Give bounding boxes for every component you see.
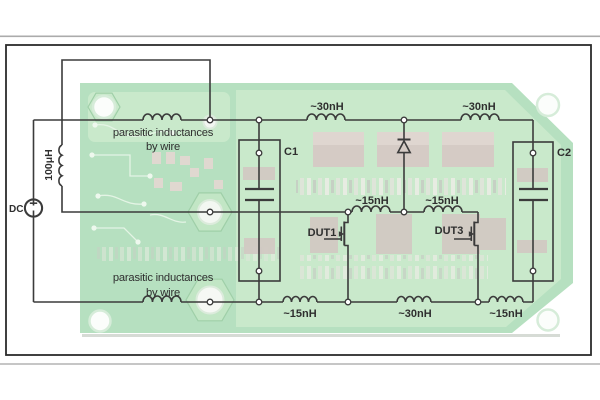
dc-source-label: DC xyxy=(9,204,23,215)
node xyxy=(401,209,407,215)
parasitic-note-top-line2: by wire xyxy=(146,141,180,153)
node xyxy=(256,150,262,156)
mid-inductor-1-label: ~15nH xyxy=(355,195,388,207)
top-inductor-1-label: ~30nH xyxy=(310,101,343,113)
pcb-pad-row xyxy=(300,255,488,279)
node xyxy=(475,299,481,305)
parasitic-note-top-line1: parasitic inductances xyxy=(113,127,214,139)
top-inductor-2-label: ~30nH xyxy=(462,101,495,113)
parasitic-note-bottom-line1: parasitic inductances xyxy=(113,272,214,284)
cap1-label: C1 xyxy=(284,146,298,158)
figure-page: DC 100μH parasitic inductances by wire p… xyxy=(0,0,600,400)
top-divider xyxy=(0,36,600,38)
node xyxy=(530,150,536,156)
node xyxy=(207,117,213,123)
pcb-pad-row xyxy=(296,173,506,196)
bottom-divider xyxy=(0,363,600,365)
node xyxy=(345,209,351,215)
node xyxy=(345,299,351,305)
cap2-label: C2 xyxy=(557,147,571,159)
dut3-label: DUT3 xyxy=(435,225,464,237)
dut1-label: DUT1 xyxy=(308,227,337,239)
bottom-inductor-2-label: ~30nH xyxy=(398,308,431,320)
pcb-shadow xyxy=(82,334,560,337)
load-inductor-label: 100μH xyxy=(43,149,55,181)
node xyxy=(256,117,262,123)
node xyxy=(207,299,213,305)
node xyxy=(401,117,407,123)
node xyxy=(256,268,262,274)
parasitic-note-bottom-line2: by wire xyxy=(146,287,180,299)
node xyxy=(530,268,536,274)
node xyxy=(256,299,262,305)
bottom-inductor-1-label: ~15nH xyxy=(283,308,316,320)
bottom-inductor-3-label: ~15nH xyxy=(489,308,522,320)
node xyxy=(207,209,213,215)
mid-inductor-2-label: ~15nH xyxy=(425,195,458,207)
circuit-figure: DC 100μH parasitic inductances by wire p… xyxy=(0,0,600,400)
